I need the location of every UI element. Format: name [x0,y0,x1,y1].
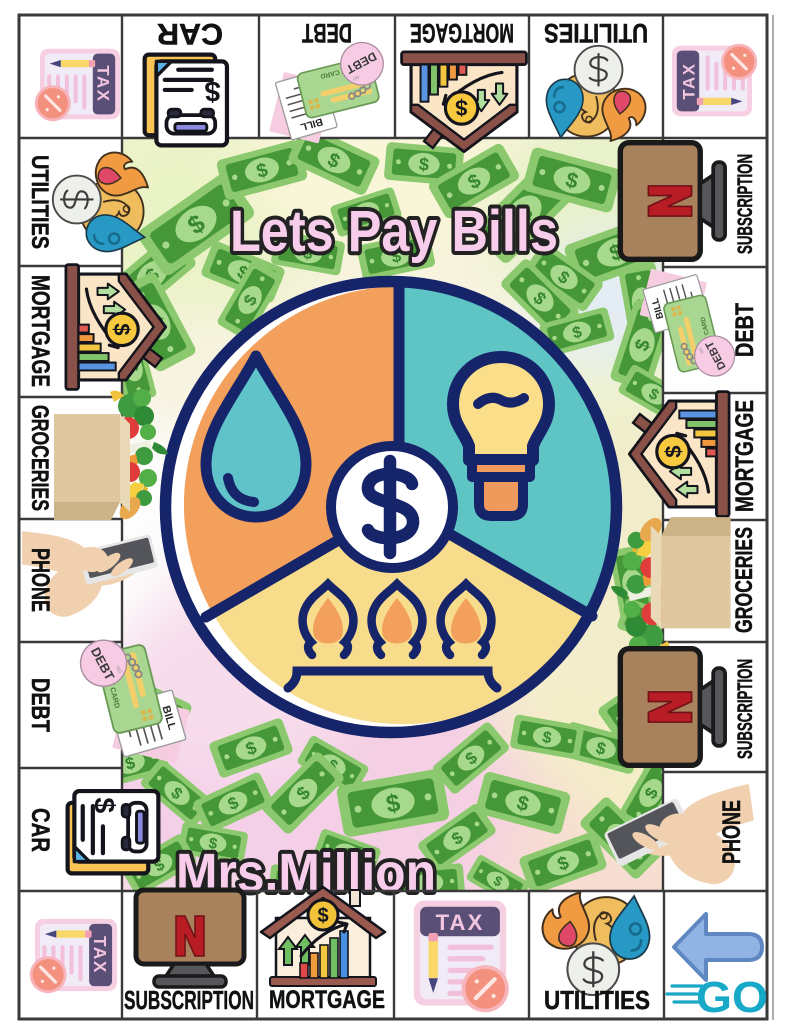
svg-text:UTILITIES: UTILITIES [26,155,53,249]
svg-text:PHONE: PHONE [718,800,746,864]
svg-text:GROCERIES: GROCERIES [26,405,53,511]
svg-text:CAR: CAR [26,808,54,852]
svg-text:MORTGAGE: MORTGAGE [410,18,514,48]
svg-text:SUBSCRIPTION: SUBSCRIPTION [734,154,757,254]
svg-text:MORTGAGE: MORTGAGE [26,275,54,387]
svg-text:DEBT: DEBT [731,303,759,357]
svg-text:UTILITIES: UTILITIES [544,985,650,1015]
svg-text:Lets Pay Bills: Lets Pay Bills [230,199,558,264]
svg-text:CAR: CAR [157,17,223,50]
svg-text:MORTGAGE: MORTGAGE [731,400,759,512]
svg-text:GROCERIES: GROCERIES [731,527,758,633]
svg-text:DEBT: DEBT [302,18,352,48]
svg-text:GO: GO [696,973,768,1022]
svg-text:DEBT: DEBT [26,678,54,732]
svg-text:MORTGAGE: MORTGAGE [269,986,385,1014]
svg-text:SUBSCRIPTION: SUBSCRIPTION [734,659,757,759]
svg-text:UTILITIES: UTILITIES [544,18,648,48]
svg-text:SUBSCRIPTION: SUBSCRIPTION [124,985,254,1015]
svg-text:PHONE: PHONE [26,548,54,612]
